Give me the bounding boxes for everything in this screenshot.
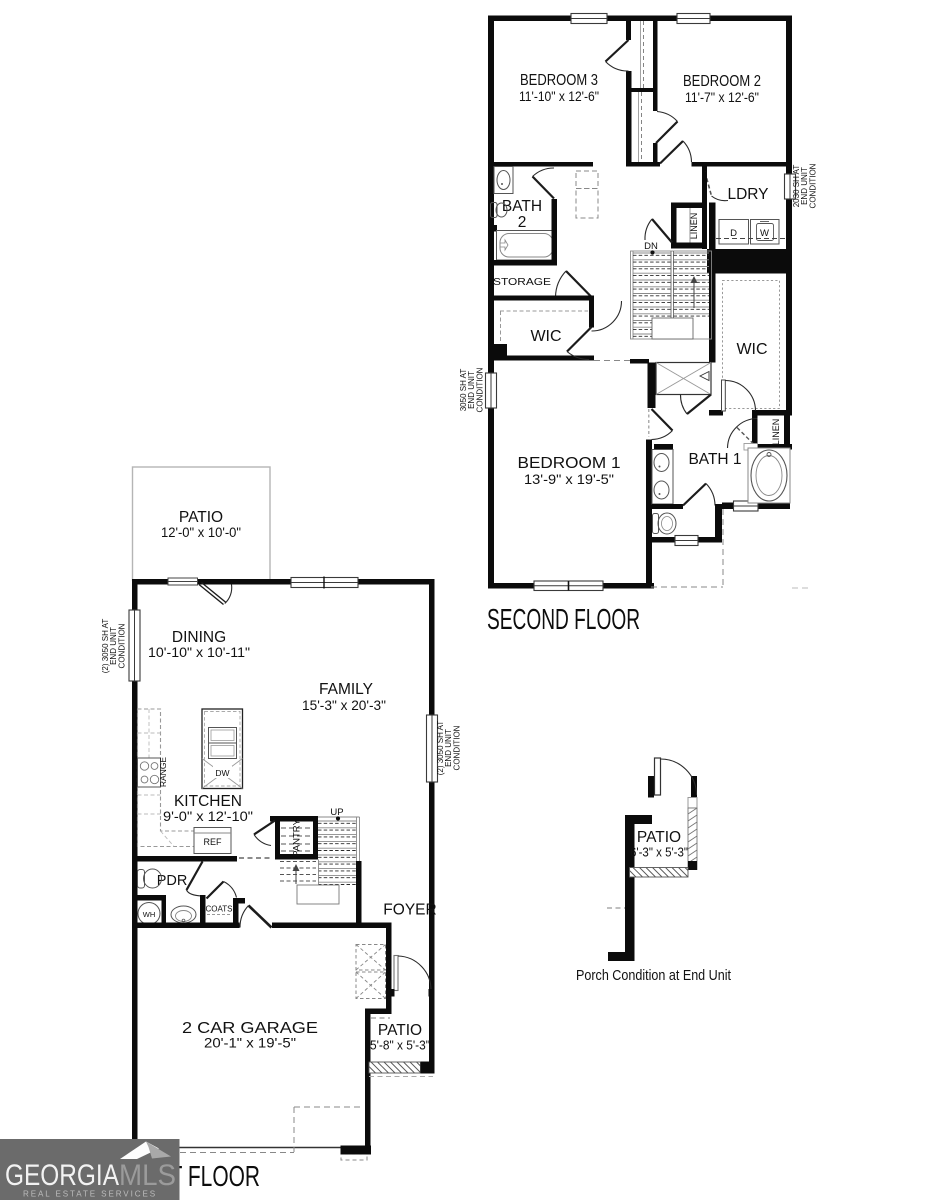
svg-text:DINING: DINING <box>172 629 226 646</box>
svg-text:WIC: WIC <box>530 328 561 345</box>
svg-text:11'-10" x 12'-6": 11'-10" x 12'-6" <box>519 89 599 104</box>
svg-text:DN: DN <box>644 241 658 252</box>
svg-text:CONDITION: CONDITION <box>808 163 817 208</box>
svg-text:12'-0" x 10'-0": 12'-0" x 10'-0" <box>161 525 241 540</box>
svg-text:GEORGIA: GEORGIA <box>5 1159 119 1192</box>
svg-text:BEDROOM 1: BEDROOM 1 <box>518 455 621 472</box>
svg-text:11'-7" x 12'-6": 11'-7" x 12'-6" <box>685 90 759 105</box>
svg-text:BEDROOM 2: BEDROOM 2 <box>683 73 761 90</box>
svg-text:REF: REF <box>204 837 223 847</box>
svg-text:FAMILY: FAMILY <box>319 681 373 698</box>
svg-text:BATH: BATH <box>502 198 542 215</box>
svg-text:DW: DW <box>215 768 229 778</box>
svg-text:LINEN: LINEN <box>689 213 699 240</box>
svg-text:D: D <box>730 228 737 239</box>
svg-text:SECOND FLOOR: SECOND FLOOR <box>487 604 640 636</box>
svg-text:CONDITION: CONDITION <box>452 725 461 770</box>
svg-text:PATIO: PATIO <box>179 509 223 526</box>
svg-text:PATIO: PATIO <box>637 829 681 846</box>
svg-text:KITCHEN: KITCHEN <box>174 793 242 810</box>
svg-text:WH: WH <box>143 910 156 919</box>
svg-text:2: 2 <box>518 214 527 231</box>
svg-text:15'-3" x 20'-3": 15'-3" x 20'-3" <box>302 698 386 713</box>
svg-text:BATH 1: BATH 1 <box>688 451 741 468</box>
svg-text:9'-0" x 12'-10": 9'-0" x 12'-10" <box>163 809 253 824</box>
svg-text:COATS: COATS <box>206 905 233 914</box>
svg-text:MLS: MLS <box>119 1159 176 1192</box>
svg-text:REAL ESTATE SERVICES: REAL ESTATE SERVICES <box>23 1189 157 1199</box>
svg-text:LDRY: LDRY <box>727 186 768 203</box>
svg-text:20'-1" x 19'-5": 20'-1" x 19'-5" <box>204 1036 296 1051</box>
svg-text:FOYER: FOYER <box>383 902 436 919</box>
svg-text:5'-8" x 5'-3": 5'-8" x 5'-3" <box>370 1038 430 1053</box>
svg-text:BEDROOM 3: BEDROOM 3 <box>520 72 598 89</box>
svg-text:W: W <box>760 228 769 239</box>
svg-text:PANTRY: PANTRY <box>292 819 303 857</box>
svg-text:STORAGE: STORAGE <box>493 276 551 288</box>
svg-text:UP: UP <box>330 807 343 818</box>
svg-text:13'-9" x 19'-5": 13'-9" x 19'-5" <box>524 471 614 487</box>
svg-text:RANGE: RANGE <box>158 757 168 788</box>
svg-text:CONDITION: CONDITION <box>117 623 126 668</box>
svg-text:CONDITION: CONDITION <box>475 367 484 412</box>
svg-text:6'-3" x 5'-3": 6'-3" x 5'-3" <box>630 845 688 860</box>
svg-text:Porch Condition at End Unit: Porch Condition at End Unit <box>576 968 731 984</box>
svg-text:LINEN: LINEN <box>771 419 781 446</box>
svg-text:10'-10" x 10'-11": 10'-10" x 10'-11" <box>148 645 250 660</box>
svg-text:2 CAR GARAGE: 2 CAR GARAGE <box>182 1020 318 1037</box>
svg-text:PATIO: PATIO <box>378 1022 422 1039</box>
svg-text:WIC: WIC <box>736 341 767 358</box>
